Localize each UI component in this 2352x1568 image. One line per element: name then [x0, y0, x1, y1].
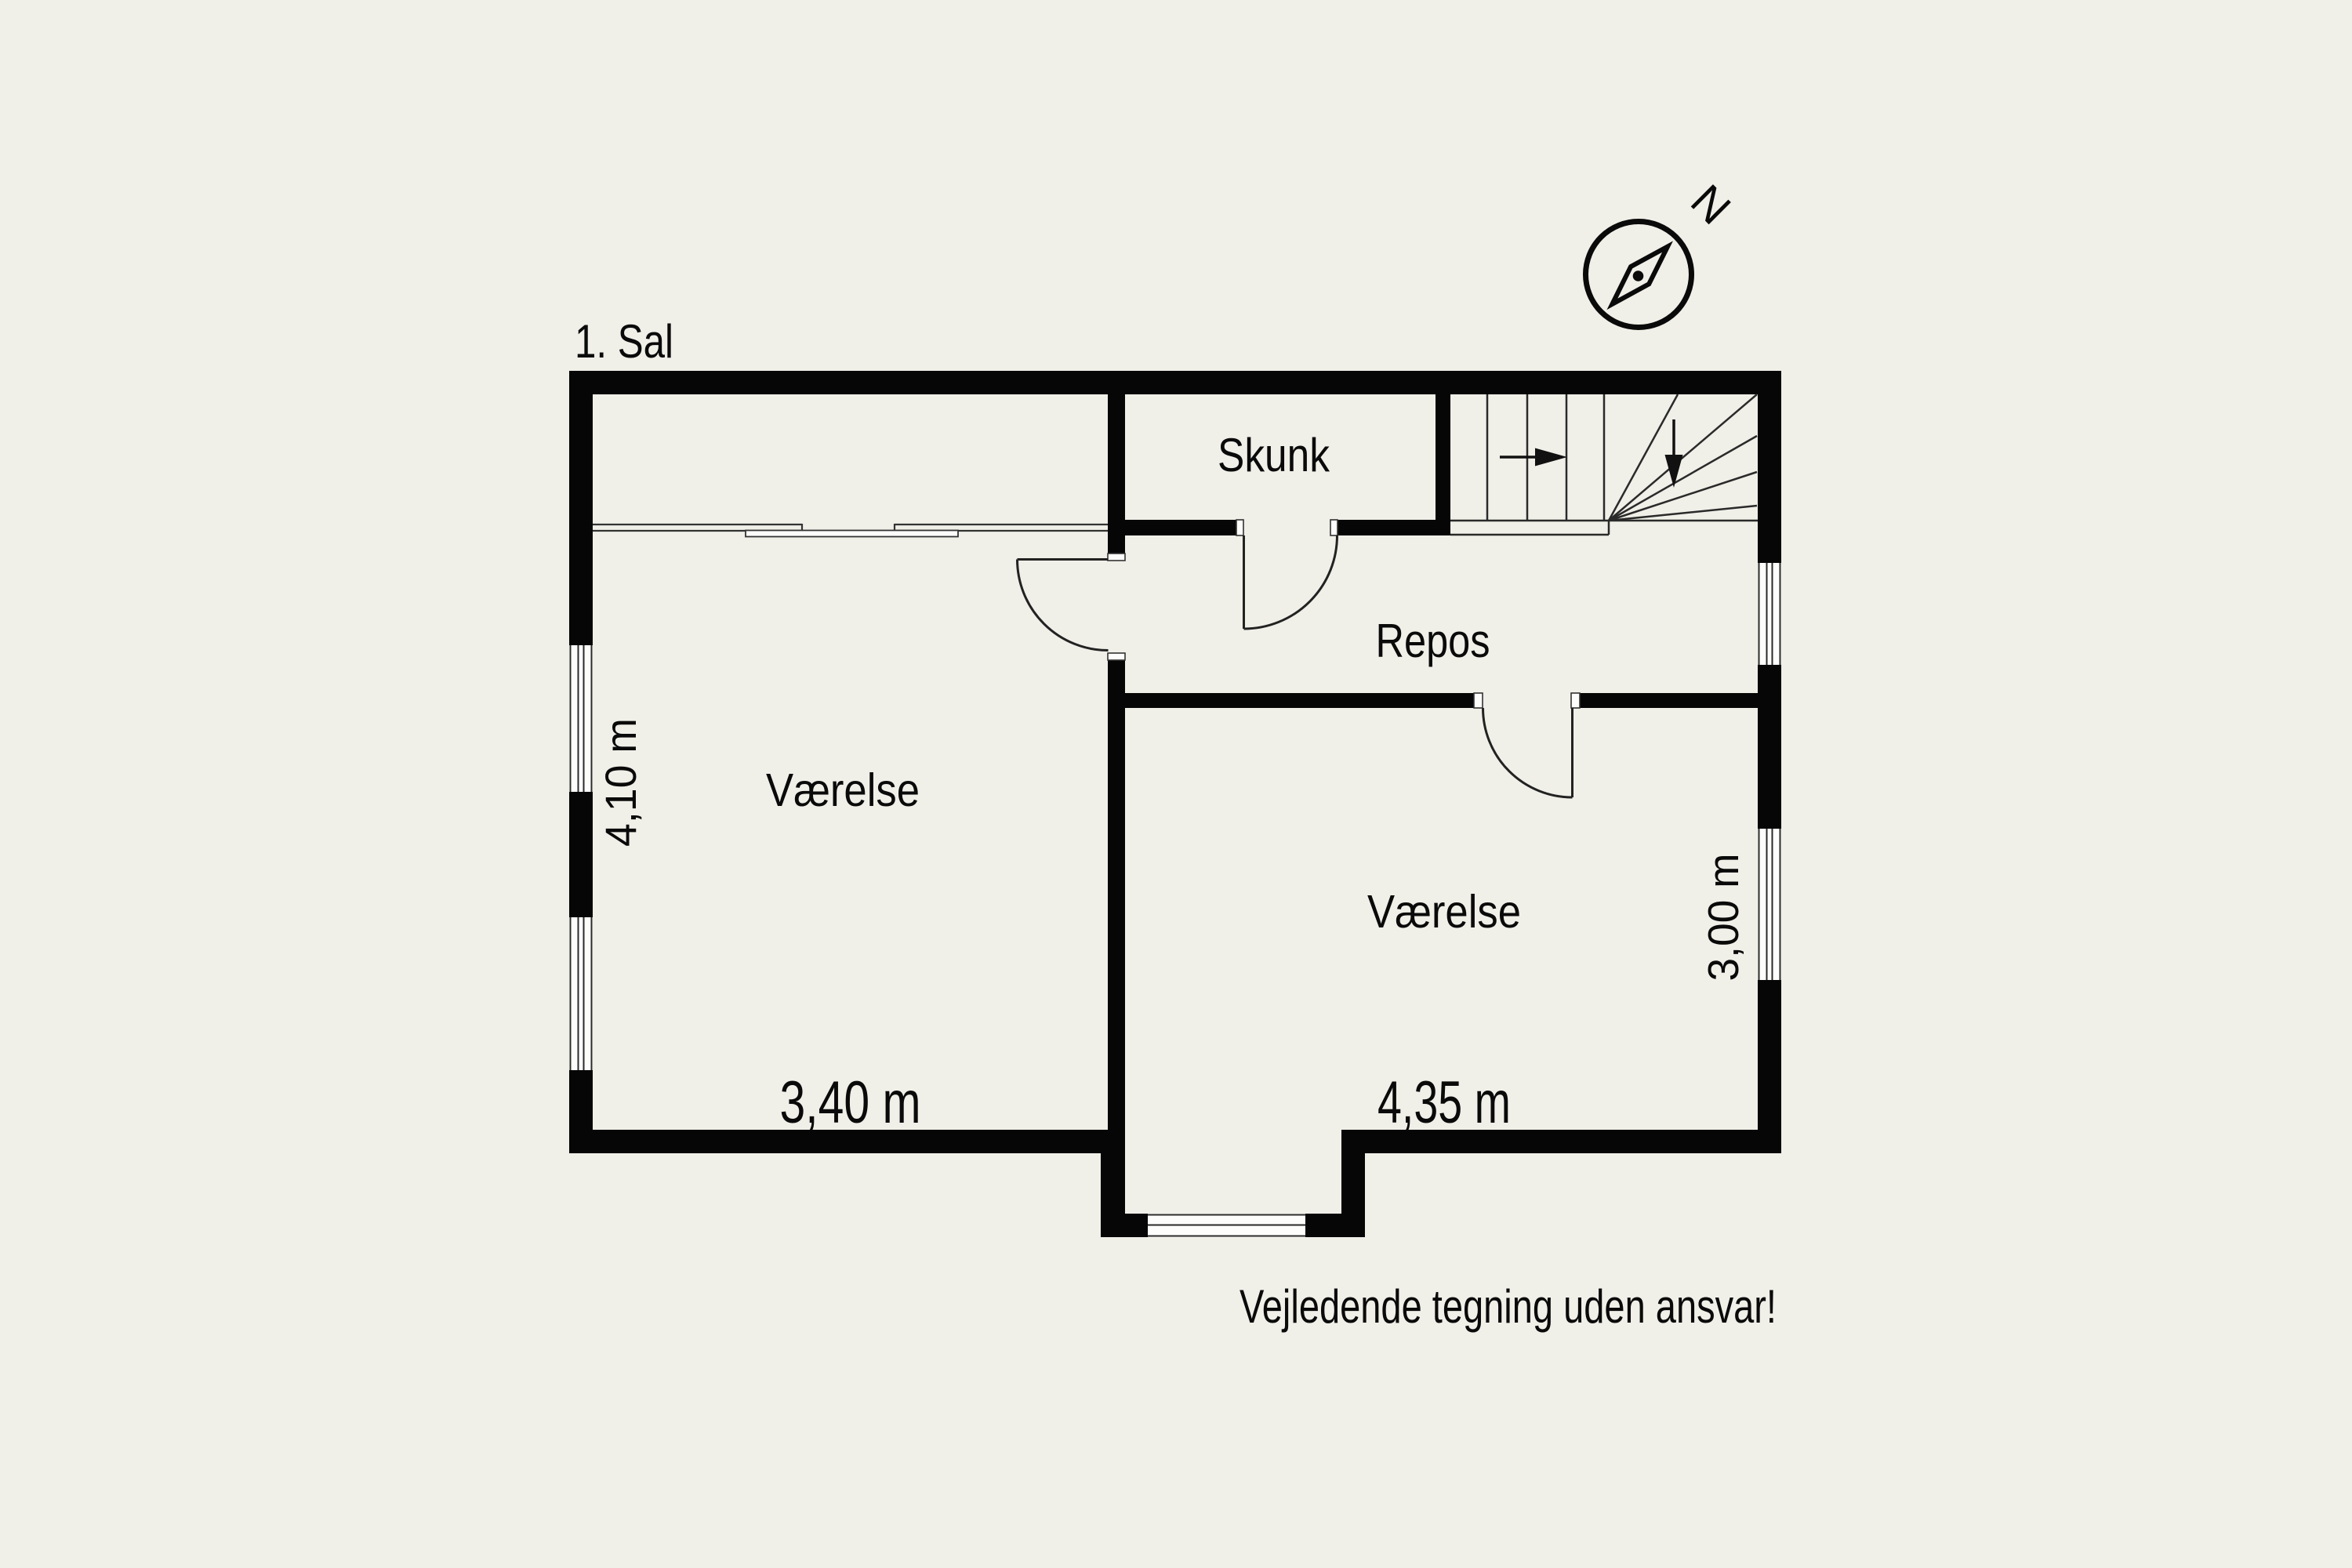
svg-text:4,10 m: 4,10 m [596, 718, 645, 847]
svg-text:Vejledende tegning uden ansvar: Vejledende tegning uden ansvar! [1240, 1280, 1777, 1333]
svg-text:Repos: Repos [1376, 615, 1490, 667]
svg-text:3,40 m: 3,40 m [780, 1069, 921, 1136]
svg-text:Skunk: Skunk [1218, 429, 1330, 481]
svg-text:Værelse: Værelse [766, 764, 920, 816]
svg-text:Værelse: Værelse [1367, 886, 1521, 938]
svg-text:1. Sal: 1. Sal [575, 315, 673, 368]
svg-text:4,35 m: 4,35 m [1377, 1069, 1511, 1136]
svg-text:3,00 m: 3,00 m [1699, 854, 1748, 982]
